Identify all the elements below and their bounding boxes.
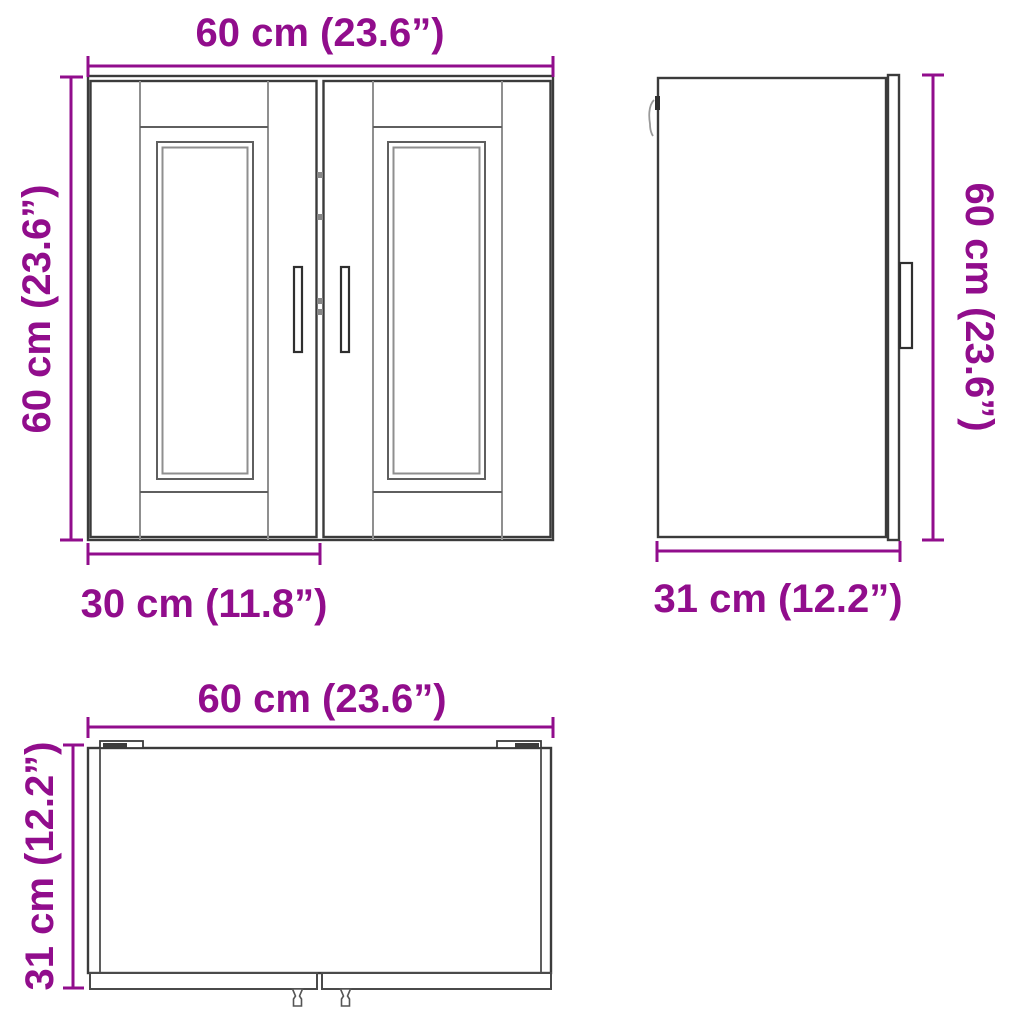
side-height-label: 60 cm (23.6”) [957,182,1001,431]
top-right-bracket [497,741,541,748]
diagram-svg: 60 cm (23.6”) 60 cm (23.6”) 30 cm (11.8”… [0,0,1024,1024]
top-right-door-front [322,973,551,989]
top-depth-dimension: 31 cm (12.2”) [18,741,84,990]
front-door-width-label: 30 cm (11.8”) [81,582,328,626]
side-door-edge [888,75,899,540]
front-left-door-handle [294,267,302,352]
side-door-handle [900,263,912,348]
side-depth-dimension: 31 cm (12.2”) [653,541,902,621]
side-depth-label: 31 cm (12.2”) [653,577,902,621]
top-left-door-front [90,973,317,989]
top-right-handle-profile [341,989,351,1006]
front-width-dimension: 60 cm (23.6”) [88,11,553,77]
front-right-door [324,81,551,537]
top-depth-label: 31 cm (12.2”) [18,741,62,990]
front-right-door-handle [341,267,349,352]
top-left-bracket [100,741,143,748]
top-view: 60 cm (23.6”) 31 cm (12.2”) [18,677,553,1006]
front-height-dimension: 60 cm (23.6”) [15,77,83,540]
side-view: 60 cm (23.6”) 31 cm (12.2”) [649,75,1001,621]
top-width-label: 60 cm (23.6”) [197,677,446,721]
front-height-label: 60 cm (23.6”) [15,184,59,433]
top-left-handle-profile [293,989,303,1006]
front-view: 60 cm (23.6”) 60 cm (23.6”) 30 cm (11.8”… [15,11,553,626]
front-left-door [91,81,317,537]
top-width-dimension: 60 cm (23.6”) [88,677,553,738]
top-body-outline [88,748,551,973]
side-body-outline [658,78,886,537]
front-door-width-dimension: 30 cm (11.8”) [81,543,328,626]
front-width-label: 60 cm (23.6”) [195,11,444,55]
side-height-dimension: 60 cm (23.6”) [922,75,1001,540]
cabinet-dimension-diagram: 60 cm (23.6”) 60 cm (23.6”) 30 cm (11.8”… [0,0,1024,1024]
